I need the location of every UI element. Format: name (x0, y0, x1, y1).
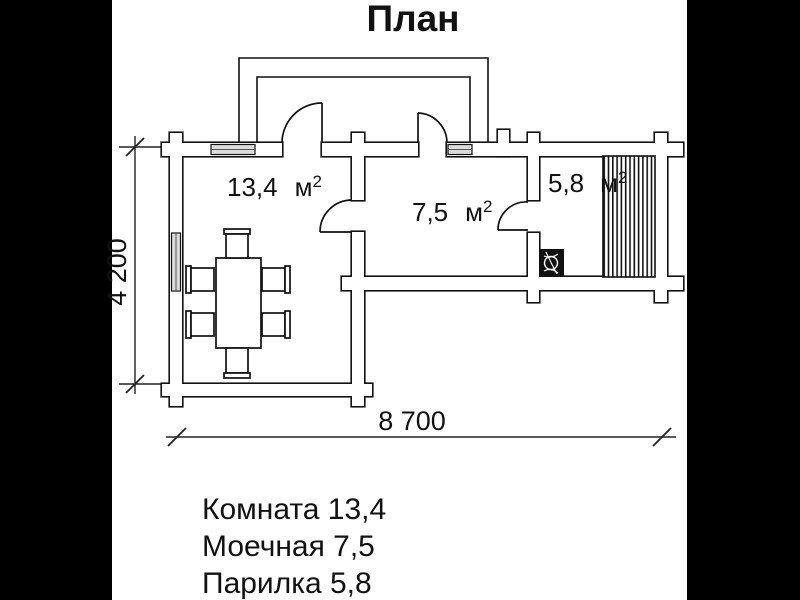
unit-sup: 2 (312, 172, 321, 191)
chair (186, 311, 214, 338)
slide-canvas (112, 0, 687, 600)
unit-sup: 2 (483, 197, 492, 216)
floor-plan-slide: План 4 200 8 700 (0, 0, 800, 600)
legend: Комната 13,4 Моечная 7,5 Парилка 5,8 (202, 493, 386, 600)
window (211, 145, 255, 155)
chair (186, 266, 214, 293)
chair (262, 311, 290, 338)
window (172, 233, 181, 291)
chair (224, 229, 250, 258)
legend-item: Парилка 5,8 (202, 567, 372, 600)
room-area-value: 7,5 (412, 197, 448, 227)
stove-icon (539, 249, 564, 277)
legend-item: Моечная 7,5 (202, 530, 375, 563)
chair (262, 266, 290, 293)
page-title: План (366, 0, 459, 39)
room-area-value: 13,4 (227, 172, 278, 202)
unit-sup: 2 (618, 168, 627, 187)
width-dimension-label: 8 700 (378, 406, 446, 436)
unit-m: м (465, 197, 483, 227)
unit-m: м (600, 168, 618, 198)
dining-table (216, 258, 261, 348)
legend-item: Комната 13,4 (202, 493, 386, 526)
chair (224, 348, 250, 378)
room-area-label-komnata: 13,4м2 (227, 172, 322, 202)
room-area-value: 5,8 (548, 168, 584, 198)
height-dimension-label: 4 200 (102, 238, 132, 306)
unit-m: м (295, 172, 313, 202)
window (448, 145, 472, 155)
